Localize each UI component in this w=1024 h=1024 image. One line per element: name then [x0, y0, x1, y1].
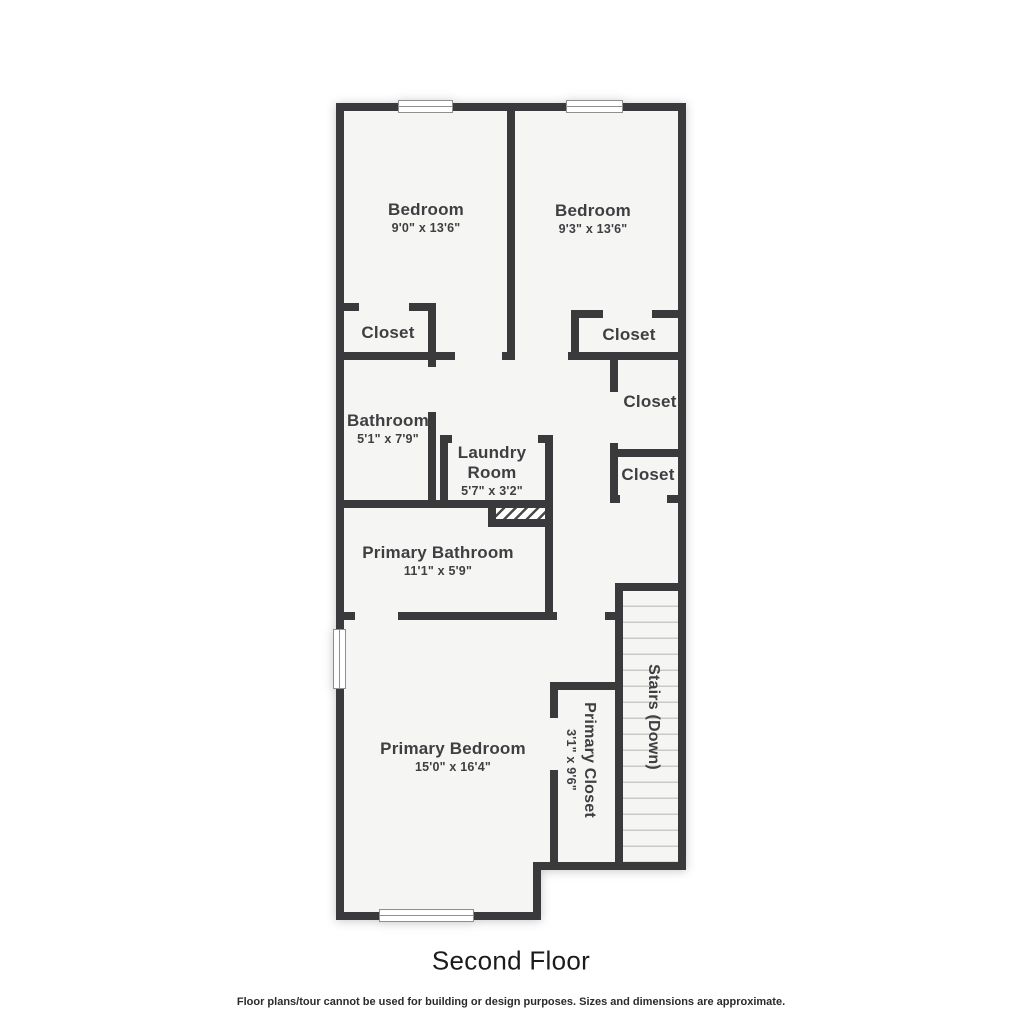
wall	[428, 360, 436, 367]
disclaimer-text: Floor plans/tour cannot be used for buil…	[237, 996, 785, 1008]
room-label-closet-bedroom-left: Closet	[361, 323, 414, 343]
wall	[428, 412, 436, 500]
wall	[610, 352, 618, 392]
wall	[440, 435, 452, 443]
room-name: Bedroom	[555, 201, 631, 221]
room-name: Closet	[623, 392, 676, 412]
room-label-bedroom-left: Bedroom 9'0" x 13'6"	[388, 200, 464, 236]
room-name: Bedroom	[388, 200, 464, 220]
wall	[336, 303, 359, 311]
wall	[678, 103, 686, 870]
room-name: Primary Bedroom	[380, 739, 526, 759]
room-label-stairs: Stairs (Down)	[643, 664, 663, 770]
wall	[652, 310, 686, 318]
wall	[398, 612, 557, 620]
room-name: Laundry Room	[436, 443, 548, 483]
room-name: Primary Bathroom	[362, 543, 514, 563]
room-dimensions: 5'7" x 3'2"	[436, 483, 548, 499]
room-name: Primary Closet	[579, 702, 599, 818]
room-name: Closet	[361, 323, 414, 343]
wall	[571, 310, 579, 360]
room-name: Closet	[621, 465, 674, 485]
room-dimensions: 5'1" x 7'9"	[347, 431, 429, 447]
room-label-primary-bedroom: Primary Bedroom 15'0" x 16'4"	[380, 739, 526, 775]
room-dimensions: 3'1" x 9'6"	[563, 702, 579, 818]
room-name: Closet	[602, 325, 655, 345]
window-icon	[398, 100, 453, 113]
room-label-bedroom-right: Bedroom 9'3" x 13'6"	[555, 201, 631, 237]
floor-title: Second Floor	[432, 946, 590, 977]
wall	[488, 519, 553, 527]
room-dimensions: 9'3" x 13'6"	[555, 221, 631, 237]
window-icon	[566, 100, 623, 113]
wall	[507, 103, 515, 360]
room-label-primary-bathroom: Primary Bathroom 11'1" x 5'9"	[362, 543, 514, 579]
room-dimensions: 9'0" x 13'6"	[388, 220, 464, 236]
wall	[605, 612, 623, 620]
wall	[550, 682, 623, 690]
wall	[533, 862, 686, 870]
floor-plan: Bedroom 9'0" x 13'6" Bedroom 9'3" x 13'6…	[0, 0, 1024, 1024]
room-dimensions: 11'1" x 5'9"	[362, 563, 514, 579]
wall	[336, 612, 355, 620]
room-label-hall-closet-lower: Closet	[621, 465, 674, 485]
wall	[550, 770, 558, 862]
wall	[336, 103, 344, 920]
room-label-primary-closet: Primary Closet 3'1" x 9'6"	[563, 702, 599, 818]
room-label-laundry-room: Laundry Room 5'7" x 3'2"	[436, 443, 548, 499]
wall	[667, 495, 686, 503]
wall	[615, 583, 623, 870]
wall	[568, 352, 686, 360]
wall	[610, 449, 686, 457]
wall	[502, 352, 515, 360]
room-dimensions: 15'0" x 16'4"	[380, 759, 526, 775]
room-label-closet-bedroom-right: Closet	[602, 325, 655, 345]
room-label-hall-closet-upper: Closet	[623, 392, 676, 412]
wall	[615, 583, 686, 591]
window-icon	[379, 909, 474, 922]
wall	[336, 352, 455, 360]
room-name: Bathroom	[347, 411, 429, 431]
wall	[550, 682, 558, 718]
room-name: Stairs (Down)	[643, 664, 663, 770]
room-label-bathroom: Bathroom 5'1" x 7'9"	[347, 411, 429, 447]
wall	[336, 500, 553, 508]
wall	[610, 495, 620, 503]
window-icon	[333, 629, 346, 689]
